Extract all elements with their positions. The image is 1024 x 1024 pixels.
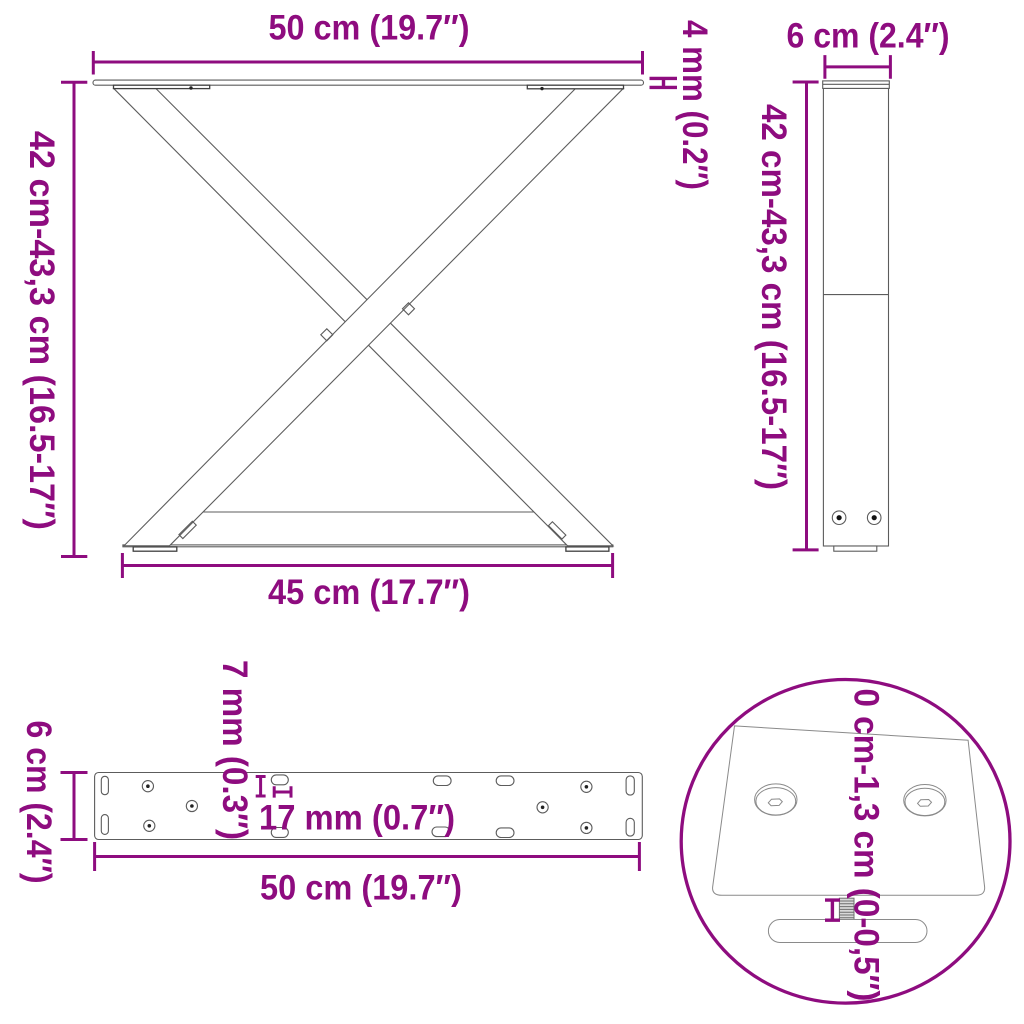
svg-text:50 cm (19.7″): 50 cm (19.7″) — [269, 9, 470, 48]
svg-text:4 mm (0.2″): 4 mm (0.2″) — [675, 20, 714, 190]
svg-text:42 cm-43,3 cm (16.5-17″): 42 cm-43,3 cm (16.5-17″) — [754, 104, 793, 490]
svg-text:42 cm-43,3 cm (16.5-17″): 42 cm-43,3 cm (16.5-17″) — [22, 131, 61, 530]
svg-text:45 cm (17.7″): 45 cm (17.7″) — [268, 573, 470, 612]
svg-text:6 cm (2.4″): 6 cm (2.4″) — [787, 17, 950, 56]
svg-text:50 cm (19.7″): 50 cm (19.7″) — [260, 869, 462, 908]
svg-text:6 cm (2.4″): 6 cm (2.4″) — [19, 721, 58, 884]
svg-text:17 mm (0.7″): 17 mm (0.7″) — [259, 799, 455, 838]
svg-text:7 mm (0.3″): 7 mm (0.3″) — [215, 660, 254, 840]
svg-text:0 cm-1,3 cm (0-0,5″): 0 cm-1,3 cm (0-0,5″) — [847, 689, 886, 1002]
